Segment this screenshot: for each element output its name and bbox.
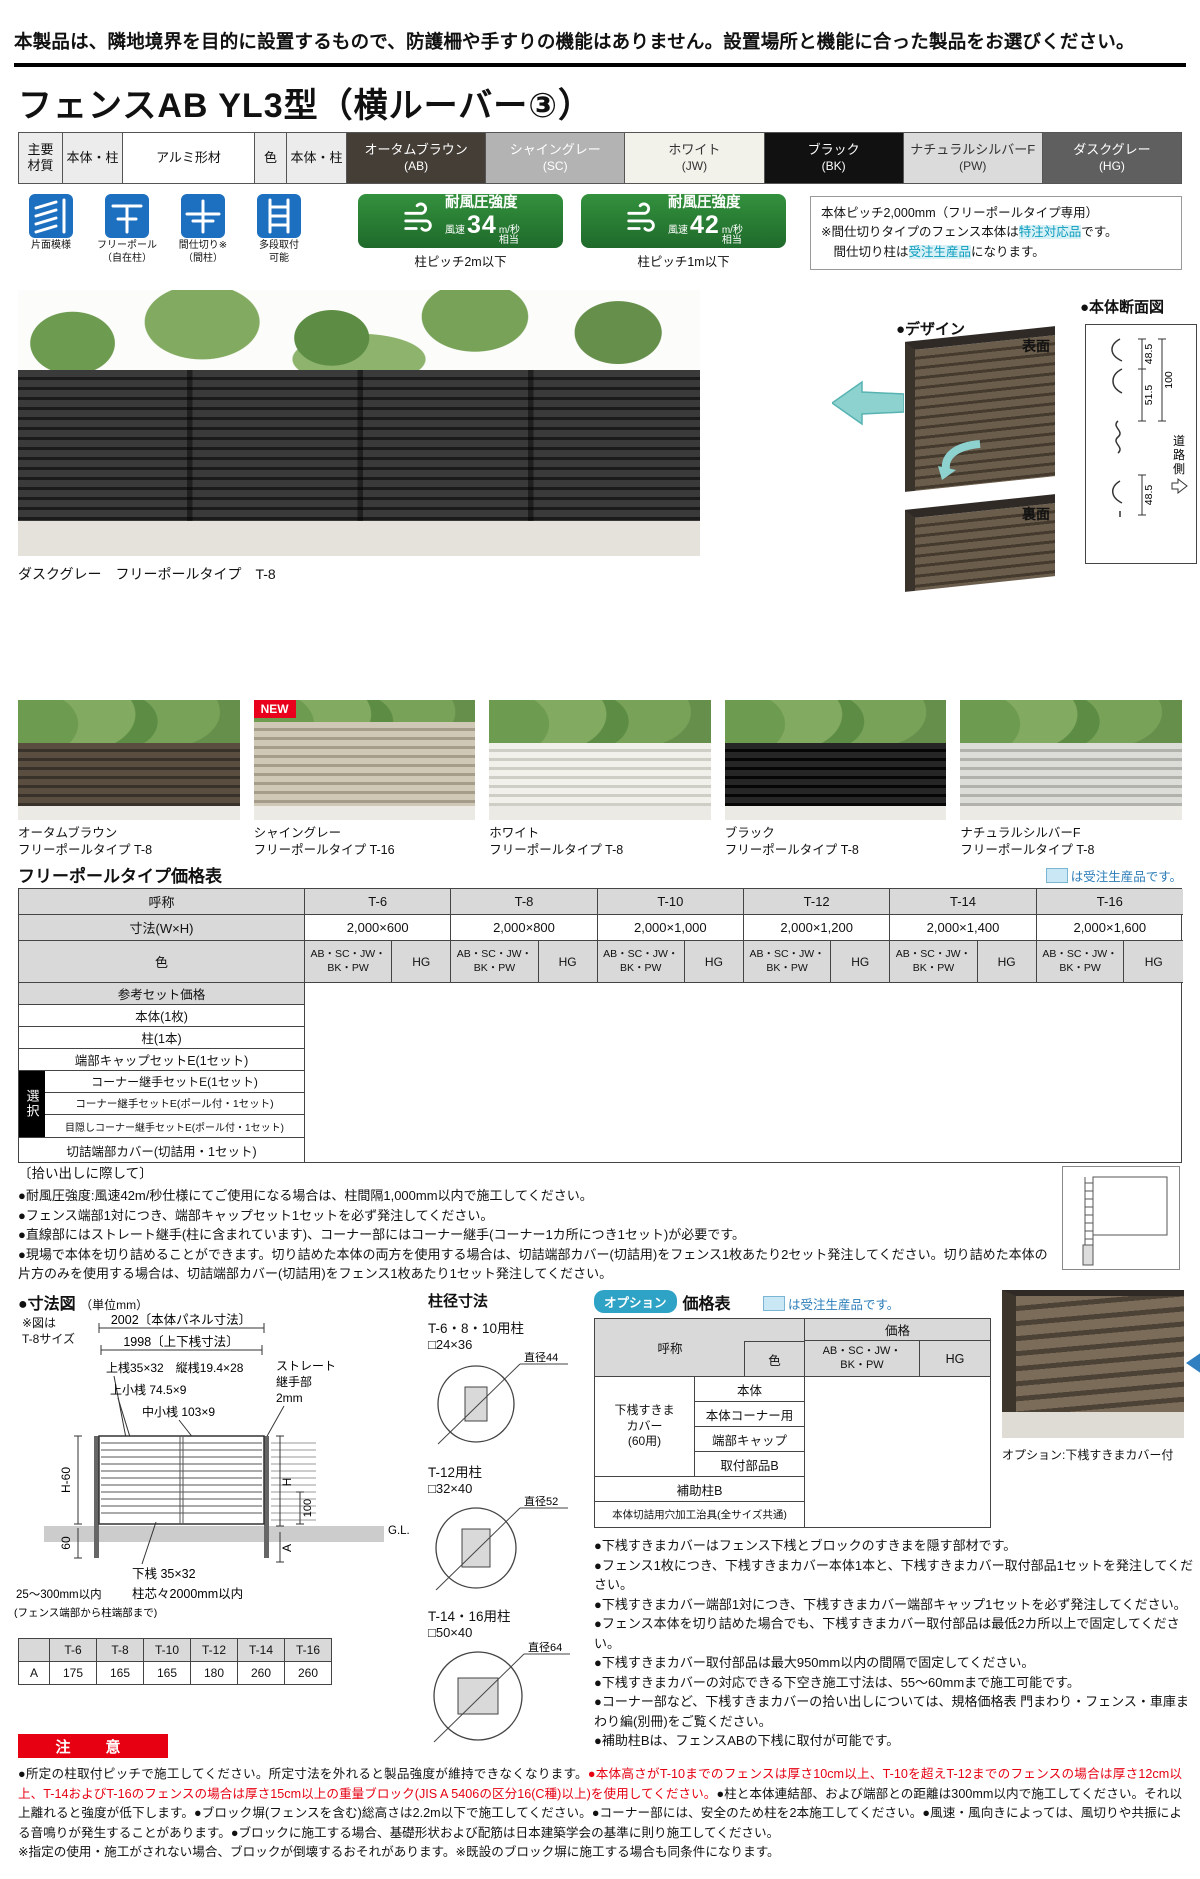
feature-icons: 片面模様 フリーポール（自在柱） 間仕切り※（間柱） 多段取付可能 bbox=[18, 194, 312, 265]
svg-text:中小桟 103×9: 中小桟 103×9 bbox=[142, 1404, 215, 1419]
col-header: T-16 bbox=[1037, 889, 1183, 915]
option-bullet: ●下桟すきまカバーはフェンス下桟とブロックのすきまを隠す部材です。 bbox=[594, 1536, 1200, 1556]
svg-text:A: A bbox=[280, 1544, 294, 1552]
variant-card: NEW シャイングレーフリーポールタイプ T-16 bbox=[254, 700, 476, 859]
design-arrow-icon bbox=[832, 380, 904, 431]
a-val: 180 bbox=[191, 1662, 238, 1685]
material-value: アルミ形材 bbox=[123, 133, 255, 183]
col-header: T-10 bbox=[598, 889, 744, 915]
svg-text:25～300mm以内: 25～300mm以内 bbox=[16, 1587, 102, 1601]
a-col: T-10 bbox=[144, 1639, 191, 1662]
materials-header: 主要 材質 bbox=[19, 133, 63, 183]
row-label: 本体(1枚) bbox=[19, 1005, 305, 1027]
option-bullet: ●フェンス1枚につき、下桟すきまカバー本体1本と、下桟すきまカバー取付部品1セッ… bbox=[594, 1556, 1200, 1595]
option-title: 価格表 bbox=[683, 1290, 731, 1314]
variant-card: オータムブラウンフリーポールタイプ T-8 bbox=[18, 700, 240, 859]
svg-text:60: 60 bbox=[59, 1536, 73, 1550]
wind-icon bbox=[401, 200, 439, 243]
a-col: T-12 bbox=[191, 1639, 238, 1662]
color-header: 色 bbox=[19, 941, 305, 983]
color-swatch: ダスクグレー (HG) bbox=[1043, 133, 1181, 183]
front-face-label: 表面 bbox=[1022, 336, 1050, 356]
option-row: 補助柱B bbox=[595, 1477, 805, 1502]
price-table: 呼称 T-6 T-8 T-10 T-12 T-14 T-16 寸法(W×H) 2… bbox=[18, 888, 1182, 1163]
option-badge: オプション bbox=[594, 1290, 677, 1313]
color-swatch: ホワイト (JW) bbox=[625, 133, 764, 183]
catalog-page: 本製品は、隣地境界を目的に設置するもので、防護柵や手すりの機能はありません。設置… bbox=[0, 0, 1200, 1879]
top-notice: 本製品は、隣地境界を目的に設置するもので、防護柵や手すりの機能はありません。設置… bbox=[14, 28, 1186, 67]
caution-section: 注 意 ●所定の柱取付ピッチで施工してください。所定寸法を外れると製品強度が維持… bbox=[18, 1734, 1182, 1863]
variant-card: ホワイトフリーポールタイプ T-8 bbox=[489, 700, 711, 859]
wind-icon bbox=[624, 200, 662, 243]
svg-text:2002〔本体パネル寸法〕: 2002〔本体パネル寸法〕 bbox=[111, 1313, 251, 1327]
post-diagram: 直径52 bbox=[428, 1496, 578, 1592]
svg-text:直径52: 直径52 bbox=[524, 1496, 558, 1508]
wind-badges: 耐風圧強度 風速 34 m/秒相当 柱ピッチ2m以下 bbox=[358, 194, 786, 270]
option-row: 取付部品B bbox=[695, 1452, 805, 1477]
color-label: 色 bbox=[255, 133, 287, 183]
pickup-bullet: ●直線部にはストレート継手(柱に含まれています)、コーナー部にはコーナー継手(コ… bbox=[18, 1225, 1048, 1245]
post-item: T-6・8・10用柱 □24×36 直径44 bbox=[428, 1317, 588, 1453]
post-diagram: 直径64 bbox=[428, 1640, 578, 1744]
svg-text:2mm: 2mm bbox=[276, 1391, 303, 1405]
option-color-group: AB・SC・JW・BK・PW bbox=[805, 1341, 920, 1377]
svg-text:100: 100 bbox=[1163, 371, 1175, 389]
main-product-photo bbox=[18, 290, 700, 556]
post-diagram: 直径44 bbox=[428, 1352, 578, 1448]
color-swatch: シャイングレー (SC) bbox=[486, 133, 625, 183]
option-arrow-icon bbox=[1186, 1352, 1200, 1374]
fence-posts bbox=[18, 370, 700, 522]
bottom-section: ●寸法図 （単位mm） ※図はT-8サイズ 2002〔本体パネル寸法〕 1998… bbox=[0, 1290, 1200, 1732]
color-group-cell: AB・SC・JW・BK・PWHG bbox=[598, 941, 744, 983]
a-table-corner bbox=[19, 1639, 50, 1662]
made-to-order-swatch bbox=[1046, 868, 1068, 883]
option-section: オプション価格表 は受注生産品です。 呼称 色 価格 AB・SC・JW・BK・P… bbox=[594, 1290, 1200, 1314]
post-sizes: 柱径寸法 T-6・8・10用柱 □24×36 直径44 T-12用柱 □32×4… bbox=[428, 1290, 588, 1757]
body-post-label: 本体・柱 bbox=[63, 133, 123, 183]
a-col: T-16 bbox=[285, 1639, 332, 1662]
price-table-title: フリーポールタイプ価格表 bbox=[18, 862, 222, 887]
color-swatch: オータムブラウン (AB) bbox=[347, 133, 486, 183]
option-bullet: ●コーナー部など、下桟すきまカバーの拾い出しについては、規格価格表 門まわり・フ… bbox=[594, 1692, 1200, 1731]
feature-partition: 間仕切り※（間柱） bbox=[170, 194, 236, 265]
col-header: T-8 bbox=[451, 889, 597, 915]
design-swoosh-icon bbox=[930, 438, 984, 487]
pickup-title: 〔拾い出しに際して〕 bbox=[18, 1164, 1182, 1184]
price-table-legend: は受注生産品です。 bbox=[1046, 866, 1182, 885]
post-sizes-title: 柱径寸法 bbox=[428, 1290, 588, 1311]
option-color-header: 色 bbox=[744, 1341, 805, 1377]
section-view-box: 48.5 100 51.5 48.5 道 路 側 bbox=[1085, 324, 1197, 564]
option-row: 端部キャップ bbox=[695, 1427, 805, 1452]
svg-text:100: 100 bbox=[302, 1499, 314, 1517]
variant-card: ナチュラルシルバーFフリーポールタイプ T-8 bbox=[960, 700, 1182, 859]
a-col: T-6 bbox=[50, 1639, 97, 1662]
pickup-bullet: ●フェンス端部1対につき、端部キャップセット1セットを必ず発注してください。 bbox=[18, 1206, 1048, 1226]
variant-photos: オータムブラウンフリーポールタイプ T-8 NEW シャイングレーフリーポールタ… bbox=[18, 700, 1182, 859]
svg-text:路: 路 bbox=[1173, 447, 1185, 462]
option-bullet: ●下桟すきまカバー取付部品は最大950mm以内の間隔で固定してください。 bbox=[594, 1653, 1200, 1673]
pickup-bullet: ●現場で本体を切り詰めることができます。切り詰めた本体の両方を使用する場合は、切… bbox=[18, 1245, 1048, 1284]
option-price-header: 価格 bbox=[805, 1319, 990, 1341]
option-row: 本体コーナー用 bbox=[695, 1402, 805, 1427]
main-photo-caption: ダスクグレー フリーポールタイプ T-8 bbox=[18, 564, 276, 584]
svg-text:48.5: 48.5 bbox=[1143, 485, 1155, 506]
option-color-group: HG bbox=[920, 1341, 990, 1377]
new-badge: NEW bbox=[254, 700, 296, 718]
option-values-area bbox=[805, 1377, 990, 1527]
svg-text:48.5: 48.5 bbox=[1143, 344, 1155, 365]
fence-image bbox=[489, 743, 711, 805]
col-header: T-6 bbox=[305, 889, 451, 915]
svg-text:上桟35×32 縦桟19.4×28: 上桟35×32 縦桟19.4×28 bbox=[106, 1361, 244, 1375]
row-label: コーナー継手セットE(1セット) bbox=[45, 1071, 304, 1093]
color-swatch: ブラック (BK) bbox=[765, 133, 904, 183]
color-group-cell: AB・SC・JW・BK・PWHG bbox=[1037, 941, 1183, 983]
color-group-cell: AB・SC・JW・BK・PWHG bbox=[305, 941, 451, 983]
row-label: 参考セット価格 bbox=[19, 983, 305, 1005]
multi-level-icon bbox=[257, 194, 301, 238]
section-view-title: ●本体断面図 bbox=[1080, 296, 1164, 317]
color-group-cell: AB・SC・JW・BK・PWHG bbox=[451, 941, 597, 983]
price-row-labels: 参考セット価格 本体(1枚) 柱(1本) 端部キャップセットE(1セット) 選択… bbox=[19, 983, 305, 1162]
row-label: 目隠しコーナー継手セットE(ポール付・1セット) bbox=[45, 1115, 304, 1137]
feature-multi-level: 多段取付可能 bbox=[246, 194, 312, 265]
a-row-label: A bbox=[19, 1662, 50, 1685]
fence-image bbox=[18, 743, 240, 805]
svg-text:柱芯々2000mm以内: 柱芯々2000mm以内 bbox=[132, 1586, 243, 1601]
caution-footnote: ※指定の使用・施工がされない場合、ブロックが倒壊するおそれがあります。※既設のブ… bbox=[18, 1843, 1182, 1863]
svg-text:G.L.: G.L. bbox=[388, 1525, 410, 1537]
row-label: 端部キャップセットE(1セット) bbox=[19, 1049, 305, 1071]
svg-text:直径44: 直径44 bbox=[524, 1352, 558, 1364]
feature-free-pole: フリーポール（自在柱） bbox=[94, 194, 160, 265]
end-cover-diagram bbox=[1062, 1166, 1180, 1270]
svg-text:継手部: 継手部 bbox=[276, 1374, 312, 1389]
a-val: 165 bbox=[97, 1662, 144, 1685]
row-label: 柱(1本) bbox=[19, 1027, 305, 1049]
option-bullet: ●フェンス本体を切り詰めた場合でも、下桟すきまカバー取付部品は最低2カ所以上で固… bbox=[594, 1614, 1200, 1653]
svg-text:道: 道 bbox=[1173, 434, 1185, 448]
post-item: T-12用柱 □32×40 直径52 bbox=[428, 1461, 588, 1597]
size-cell: 2,000×1,400 bbox=[890, 915, 1036, 941]
fence-image bbox=[254, 722, 476, 806]
size-cell: 2,000×800 bbox=[451, 915, 597, 941]
dimension-drawing: 2002〔本体パネル寸法〕 1998〔上下桟寸法〕 上桟35×32 縦桟19.4… bbox=[14, 1312, 414, 1629]
svg-text:上小桟 74.5×9: 上小桟 74.5×9 bbox=[110, 1383, 187, 1397]
caution-badge: 注 意 bbox=[18, 1734, 168, 1758]
a-val: 260 bbox=[285, 1662, 332, 1685]
size-cell: 2,000×1,200 bbox=[744, 915, 890, 941]
svg-text:下桟 35×32: 下桟 35×32 bbox=[132, 1567, 196, 1581]
size-cell: 2,000×1,600 bbox=[1037, 915, 1183, 941]
row-label: コーナー継手セットE(ポール付・1セット) bbox=[45, 1093, 304, 1115]
size-cell: 2,000×600 bbox=[305, 915, 451, 941]
feature-one-side-pattern: 片面模様 bbox=[18, 194, 84, 265]
svg-text:(フェンス端部から柱端部まで): (フェンス端部から柱端部まで) bbox=[14, 1606, 157, 1619]
a-val: 175 bbox=[50, 1662, 97, 1685]
svg-text:H: H bbox=[280, 1478, 294, 1487]
free-pole-icon bbox=[105, 194, 149, 238]
variant-card: ブラックフリーポールタイプ T-8 bbox=[725, 700, 947, 859]
main-visual: ダスクグレー フリーポールタイプ T-8 ●デザイン 表面 裏面 ●本体断面図 bbox=[0, 288, 1200, 588]
col-header: T-14 bbox=[890, 889, 1036, 915]
option-price-table: 呼称 色 価格 AB・SC・JW・BK・PW HG 下桟すきまカバー(60用) … bbox=[594, 1318, 991, 1528]
option-row: 本体切詰用穴加工治具(全サイズ共通) bbox=[595, 1502, 805, 1527]
option-legend: は受注生産品です。 bbox=[763, 1294, 899, 1313]
section-view-drawing: 48.5 100 51.5 48.5 道 路 側 bbox=[1086, 325, 1196, 563]
select-group: 選択 コーナー継手セットE(1セット) コーナー継手セットE(ポール付・1セット… bbox=[19, 1071, 305, 1138]
option-row: 本体 bbox=[695, 1377, 805, 1402]
option-bullet: ●下桟すきまカバーの対応できる下空き施工寸法は、55～60mmまで施工可能です。 bbox=[594, 1673, 1200, 1693]
svg-text:51.5: 51.5 bbox=[1143, 385, 1155, 406]
col-header: 呼称 bbox=[19, 889, 305, 915]
partition-icon bbox=[181, 194, 225, 238]
a-val: 260 bbox=[238, 1662, 285, 1685]
dimension-title: ●寸法図 （単位mm） bbox=[18, 1290, 148, 1314]
pickup-bullet: ●耐風圧強度:風速42m/秒仕様にてご使用になる場合は、柱間隔1,000mm以内… bbox=[18, 1186, 1048, 1206]
fence-image bbox=[725, 743, 947, 805]
materials-color-table: 主要 材質 本体・柱 アルミ形材 色 本体・柱 オータムブラウン (AB) シャ… bbox=[18, 132, 1182, 184]
fence-image bbox=[960, 743, 1182, 805]
back-face-label: 裏面 bbox=[1022, 504, 1050, 524]
ground bbox=[18, 521, 700, 556]
price-values-area bbox=[305, 983, 1181, 1162]
one-side-pattern-icon bbox=[29, 194, 73, 238]
col-header: T-12 bbox=[744, 889, 890, 915]
option-group-label: 下桟すきまカバー(60用) bbox=[595, 1377, 695, 1477]
row-label: 切詰端部カバー(切詰用・1セット) bbox=[19, 1138, 305, 1162]
body-post-label2: 本体・柱 bbox=[287, 133, 347, 183]
select-label: 選択 bbox=[19, 1071, 45, 1137]
embed-depth-table: T-6 T-8 T-10 T-12 T-14 T-16 A 175 165 16… bbox=[18, 1638, 332, 1685]
a-col: T-8 bbox=[97, 1639, 144, 1662]
post-item: T-14・16用柱 □50×40 直径64 bbox=[428, 1605, 588, 1749]
option-photo-caption: オプション:下桟すきまカバー付 bbox=[1002, 1446, 1173, 1463]
features-row: 片面模様 フリーポール（自在柱） 間仕切り※（間柱） 多段取付可能 bbox=[18, 194, 1182, 266]
a-val: 165 bbox=[144, 1662, 191, 1685]
caution-text: ●所定の柱取付ピッチで施工してください。所定寸法を外れると製品強度が維持できなく… bbox=[18, 1765, 1182, 1863]
size-header: 寸法(W×H) bbox=[19, 915, 305, 941]
svg-text:側: 側 bbox=[1173, 462, 1185, 476]
svg-text:ストレート: ストレート bbox=[276, 1359, 336, 1373]
color-group-cell: AB・SC・JW・BK・PWHG bbox=[890, 941, 1036, 983]
svg-text:直径64: 直径64 bbox=[528, 1640, 562, 1654]
size-cell: 2,000×1,000 bbox=[598, 915, 744, 941]
pickup-notes: 〔拾い出しに際して〕 ●耐風圧強度:風速42m/秒仕様にてご使用になる場合は、柱… bbox=[18, 1164, 1182, 1284]
color-swatch: ナチュラルシルバーF (PW) bbox=[904, 133, 1043, 183]
wind-badge-34: 耐風圧強度 風速 34 m/秒相当 柱ピッチ2m以下 bbox=[358, 194, 563, 270]
pitch-info-box: 本体ピッチ2,000mm（フリーポールタイプ専用） ※間仕切りタイプのフェンス本… bbox=[810, 196, 1182, 270]
made-to-order-swatch bbox=[763, 1296, 785, 1311]
road-side-arrow-icon bbox=[1172, 479, 1187, 493]
a-col: T-14 bbox=[238, 1639, 285, 1662]
svg-text:H-60: H-60 bbox=[59, 1467, 73, 1493]
option-notes: ●下桟すきまカバーはフェンス下桟とブロックのすきまを隠す部材です。 ●フェンス1… bbox=[594, 1536, 1200, 1751]
page-title: フェンスAB YL3型（横ルーバー③） bbox=[18, 78, 593, 127]
option-photo-base bbox=[1002, 1412, 1184, 1438]
svg-text:1998〔上下桟寸法〕: 1998〔上下桟寸法〕 bbox=[123, 1335, 238, 1349]
wind-badge-42: 耐風圧強度 風速 42 m/秒相当 柱ピッチ1m以下 bbox=[581, 194, 786, 270]
color-group-cell: AB・SC・JW・BK・PWHG bbox=[744, 941, 890, 983]
option-bullet: ●下桟すきまカバー端部1対につき、下桟すきまカバー端部キャップ1セットを必ず発注… bbox=[594, 1595, 1200, 1615]
